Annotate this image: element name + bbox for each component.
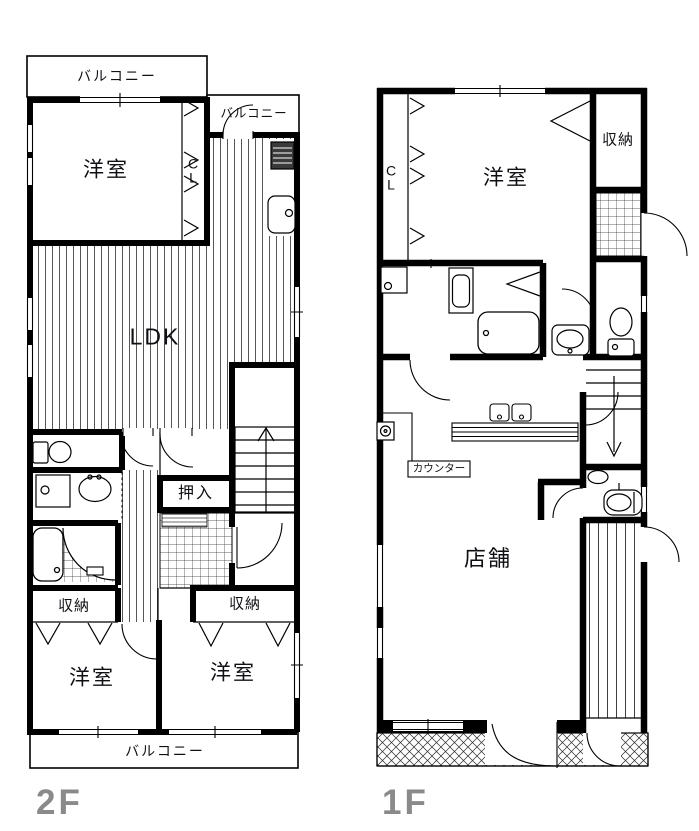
label-bedroom-nw-2f: 洋室 [83,159,129,180]
plan-1f [377,85,688,768]
label-closet-cl-1f: C L [386,164,396,193]
stove-icon [271,142,294,169]
staircase-2f [235,427,297,512]
wash-basin-icon-1f [552,325,589,355]
label-closet-cl-2f: C L [188,157,198,186]
staircase-1f [586,370,644,456]
label-bedroom-1f: 洋室 [483,167,529,188]
stairs-down-arrow-icon [607,376,621,456]
corridor-floor-hatch [586,523,641,718]
floor-label-2f: 2F [36,783,83,823]
label-oshiire-2f: 押入 [178,486,214,502]
label-balcony-top-2f: バルコニー [77,69,157,83]
label-storage-left-2f: 収納 [58,598,90,613]
water-heater-icon-1f [377,422,394,440]
entrance-hatch [377,732,648,766]
label-shop-1f: 店舗 [464,548,512,570]
closet-door-chevrons-1f [410,98,592,296]
toilet-icon-2f [33,442,71,464]
bathtub-icon-2f [33,528,63,581]
wash-basin-icon-2f [79,475,111,502]
label-bedroom-sw-2f: 洋室 [69,667,115,688]
hall-floor-hatch [122,470,158,622]
washing-machine-icon-1f [381,267,407,293]
bathtub-icon-1f [478,312,539,354]
toilet-icon-1f-lower [588,471,642,516]
floor-label-1f: 1F [382,783,429,823]
label-ldk-2f: LDK [130,325,181,348]
genkan-tile-hatch [596,193,641,256]
floor-plan-drawing [0,0,699,831]
kitchen-sink-icon [268,196,295,233]
bathroom-2f [63,528,115,582]
washstand-icon-1f [449,268,473,313]
floor-plan-page: バルコニー バルコニー 洋室 C L LDK 押入 収納 収納 洋室 洋室 バル… [0,0,699,831]
ldk-floor-hatch [33,138,294,429]
toilet-icon-1f-upper [608,308,634,356]
label-bedroom-se-2f: 洋室 [210,662,256,683]
hall-mat-stripes [162,514,207,527]
label-storage-right-2f: 収納 [229,596,261,611]
label-counter-1f: カウンター [413,464,466,475]
label-storage-1f: 収納 [602,132,634,147]
plan-2f [27,56,304,768]
label-balcony-kitchen-2f: バルコニー [220,108,287,121]
washing-machine-icon-2f [36,475,70,507]
label-balcony-bottom-2f: バルコニー [125,744,205,758]
